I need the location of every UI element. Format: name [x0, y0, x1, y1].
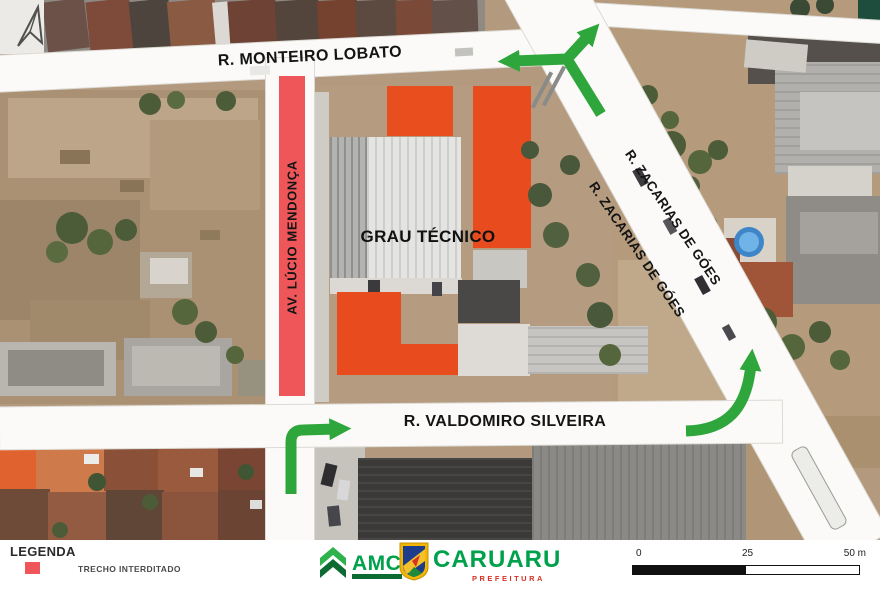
scale-bar: 0 25 50 m [632, 548, 872, 582]
scale-tick-25: 25 [742, 548, 753, 559]
scale-tick-0: 0 [636, 548, 642, 559]
scale-track [632, 565, 860, 575]
north-arrow-icon [6, 2, 46, 50]
caruaru-logo-subtitle: PREFEITURA [472, 574, 545, 583]
caruaru-logo-text: CARUARU [433, 546, 561, 574]
amc-logo-bar [352, 574, 402, 579]
amc-logo-icon [316, 542, 350, 582]
legend-title: LEGENDA [10, 544, 76, 559]
arrow-curve-up-icon [686, 364, 751, 431]
satellite-map: R. MONTEIRO LOBATO R. ZACARIAS DE GÓES R… [0, 0, 880, 540]
arrow-turn-right-icon [291, 429, 336, 494]
arrow-fork-up-icon [567, 35, 589, 59]
scale-tick-50: 50 m [844, 548, 866, 559]
scale-fill [633, 566, 746, 574]
traffic-flow-arrows [0, 0, 880, 540]
legend-item-label: TRECHO INTERDITADO [78, 564, 181, 574]
map-document: R. MONTEIRO LOBATO R. ZACARIAS DE GÓES R… [0, 0, 880, 592]
footer-bar: LEGENDA TRECHO INTERDITADO AMC CARUARU P… [0, 540, 880, 592]
amc-logo: AMC [316, 542, 350, 590]
legend-closed-swatch [25, 562, 40, 574]
caruaru-crest-icon [398, 541, 430, 586]
arrow-fork-left-icon [513, 59, 601, 114]
amc-logo-text: AMC [352, 552, 401, 576]
